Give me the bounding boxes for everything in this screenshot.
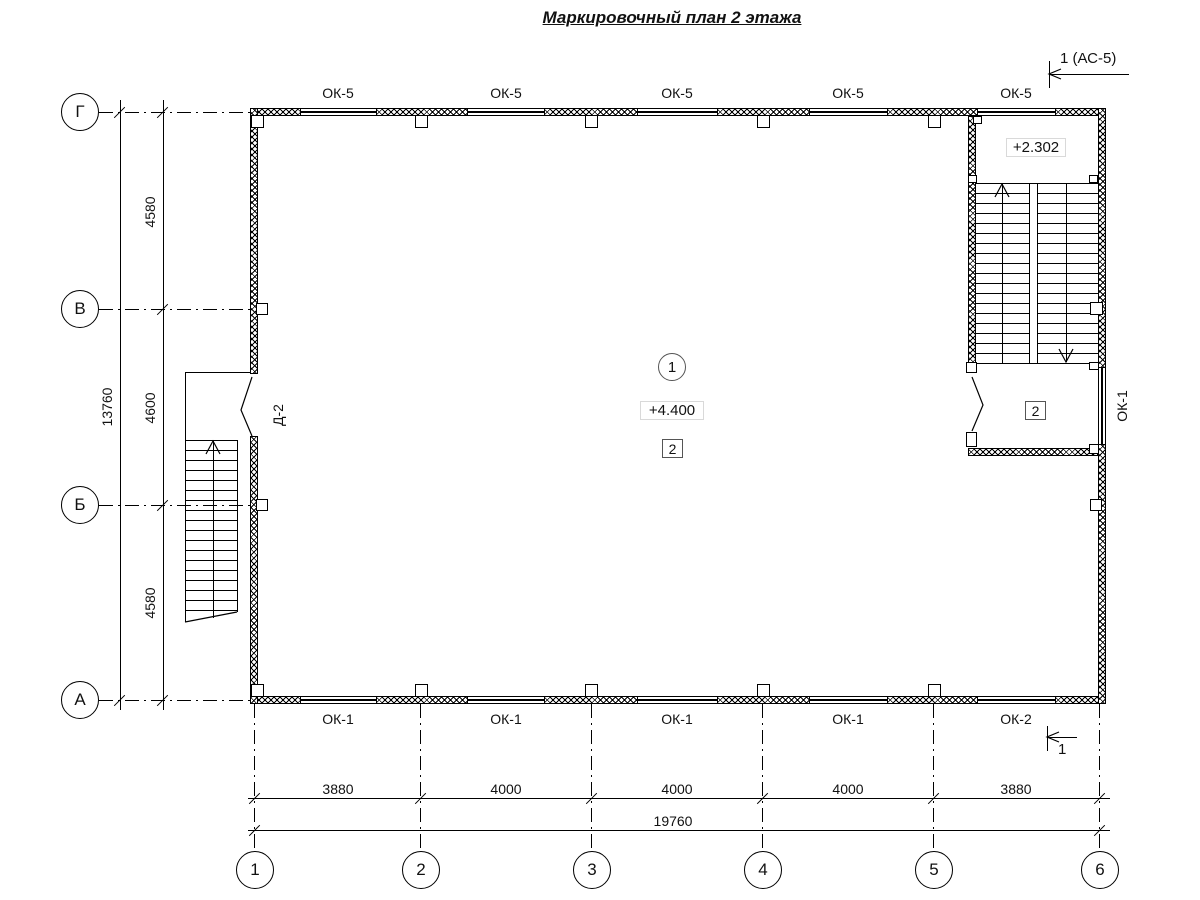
stair-tread [976, 213, 1029, 214]
stair-tread [976, 233, 1029, 234]
dim-bottom-total: 19760 [643, 813, 703, 829]
column-marker [585, 684, 598, 697]
stair-tread [976, 263, 1029, 264]
window-label-right: ОК-1 [1114, 376, 1130, 436]
column-marker [1090, 499, 1102, 511]
window-symbol [810, 696, 887, 704]
axis-bubble-row-a: А [61, 681, 99, 719]
axis-bubble-col-5: 5 [915, 851, 953, 889]
stair-tread [1037, 283, 1098, 284]
axis-bubble-col-2: 2 [402, 851, 440, 889]
axis-bubble-row-b: Б [61, 486, 99, 524]
axis-bubble-col-3: 3 [573, 851, 611, 889]
column-marker [1089, 444, 1099, 454]
stair-tread [185, 480, 237, 481]
column-marker [966, 362, 977, 373]
stair-tread [185, 520, 237, 521]
stair-tread [1037, 293, 1098, 294]
plan-line [237, 440, 238, 612]
stair-tread [185, 450, 237, 451]
plan-line [1047, 737, 1077, 738]
wall-segment [717, 696, 810, 704]
window-symbol [638, 108, 717, 116]
dim-bottom-5: 3880 [986, 781, 1046, 797]
stair-tread [976, 283, 1029, 284]
finish-type-box-stair: 2 [1025, 401, 1046, 420]
window-symbol [978, 696, 1055, 704]
plan-line [120, 100, 121, 710]
stair-tread [976, 253, 1029, 254]
window-symbol [468, 108, 544, 116]
stair-tread [185, 610, 237, 611]
window-label-bottom-3: ОК-1 [647, 711, 707, 727]
plan-line [1049, 61, 1050, 88]
stair-tread [185, 600, 237, 601]
axis-line [99, 700, 250, 701]
dim-left-1: 4580 [142, 182, 158, 242]
window-symbol [468, 696, 544, 704]
wall-segment [887, 696, 978, 704]
level-mark-stair-landing: +2.302 [1006, 138, 1066, 157]
wall-segment [250, 108, 258, 374]
column-marker [757, 115, 770, 128]
dim-left-3: 4580 [142, 573, 158, 633]
stair-tread [1037, 263, 1098, 264]
stair-tread [1037, 323, 1098, 324]
plan-line [185, 372, 250, 373]
column-marker [1089, 175, 1098, 183]
room-number-circle: 1 [658, 353, 686, 381]
wall-segment [1098, 108, 1106, 368]
stair-tread [1037, 243, 1098, 244]
door-swing-d2 [241, 377, 252, 436]
window-label-top-5: ОК-5 [986, 85, 1046, 101]
stair-tread [976, 273, 1029, 274]
axis-line [933, 704, 934, 851]
plan-line [185, 440, 237, 441]
door-label: Д-2 [270, 385, 286, 445]
stair-tread [185, 580, 237, 581]
plan-line [976, 183, 1098, 184]
stair-tread [185, 560, 237, 561]
dim-left-2: 4600 [142, 378, 158, 438]
window-label-bottom-5: ОК-2 [986, 711, 1046, 727]
window-label-top-4: ОК-5 [818, 85, 878, 101]
drawing-title: Маркировочный план 2 этажа [372, 8, 972, 28]
column-marker [966, 432, 977, 447]
column-marker [256, 303, 268, 315]
plan-line [248, 830, 1110, 831]
stair-tread [1037, 233, 1098, 234]
column-marker [1090, 302, 1103, 315]
stair-tread [976, 353, 1029, 354]
window-symbol [301, 108, 376, 116]
window-symbol [1098, 368, 1106, 444]
stair-tread [185, 550, 237, 551]
stair-tread [976, 333, 1029, 334]
axis-line [591, 704, 592, 851]
column-marker [585, 115, 598, 128]
stair-tread [185, 530, 237, 531]
column-marker [415, 684, 428, 697]
stair-tread [1037, 223, 1098, 224]
axis-line [99, 112, 250, 113]
window-label-top-3: ОК-5 [647, 85, 707, 101]
window-label-bottom-4: ОК-1 [818, 711, 878, 727]
stair-tread [976, 303, 1029, 304]
wall-segment [544, 696, 638, 704]
stair-tread [185, 590, 237, 591]
section-mark-top-label: 1 (АС-5) [1060, 50, 1116, 67]
stair-tread [1037, 353, 1098, 354]
stair-tread [185, 510, 237, 511]
stair-tread [1037, 273, 1098, 274]
axis-line [762, 704, 763, 851]
axis-line [99, 505, 250, 506]
window-symbol [301, 696, 376, 704]
plan-line [1047, 726, 1048, 751]
stair-tread [185, 500, 237, 501]
stair-tread [1037, 313, 1098, 314]
wall-segment [376, 696, 468, 704]
stair-tread [185, 460, 237, 461]
dim-bottom-4: 4000 [818, 781, 878, 797]
wall-segment [968, 448, 1098, 456]
stair-tread [1037, 253, 1098, 254]
window-label-bottom-2: ОК-1 [476, 711, 536, 727]
stair-tread [1037, 343, 1098, 344]
plan-line [185, 372, 186, 622]
axis-bubble-row-v: В [61, 290, 99, 328]
column-marker [928, 115, 941, 128]
level-mark-main: +4.400 [640, 401, 704, 420]
stair-tread [185, 470, 237, 471]
stair-tread [976, 293, 1029, 294]
stair-tread [1037, 333, 1098, 334]
stair-tread [976, 343, 1029, 344]
column-marker [973, 116, 982, 124]
plan-line [163, 100, 164, 710]
wall-segment [968, 116, 976, 364]
dim-left-total: 13760 [99, 377, 115, 437]
stair-bottom-slant [185, 612, 237, 622]
stair-tread [185, 540, 237, 541]
axis-bubble-col-1: 1 [236, 851, 274, 889]
stair-tread [1037, 213, 1098, 214]
stair-tread [976, 243, 1029, 244]
section-mark-bottom-label: 1 [1058, 741, 1066, 758]
stair-tread [1037, 193, 1098, 194]
column-marker [968, 175, 977, 183]
stair-tread [976, 313, 1029, 314]
wall-segment [250, 436, 258, 704]
axis-line [99, 309, 250, 310]
column-marker [256, 499, 268, 511]
stair-tread [976, 223, 1029, 224]
stair-tread [1037, 303, 1098, 304]
axis-line [420, 704, 421, 851]
stair-tread [976, 323, 1029, 324]
window-symbol [978, 108, 1055, 116]
window-label-top-1: ОК-5 [308, 85, 368, 101]
door-swing-stairwell [972, 377, 983, 431]
window-label-top-2: ОК-5 [476, 85, 536, 101]
plan-line [248, 798, 1110, 799]
stair-tread [185, 490, 237, 491]
stair-tread [185, 570, 237, 571]
dim-bottom-3: 4000 [647, 781, 707, 797]
axis-bubble-row-g: Г [61, 93, 99, 131]
column-marker [928, 684, 941, 697]
column-marker [757, 684, 770, 697]
column-marker [251, 684, 264, 697]
window-symbol [638, 696, 717, 704]
dim-bottom-1: 3880 [308, 781, 368, 797]
window-symbol [810, 108, 887, 116]
column-marker [251, 115, 264, 128]
plan-line [976, 363, 1098, 364]
window-label-bottom-1: ОК-1 [308, 711, 368, 727]
plan-line [1049, 74, 1129, 75]
floor-plan-canvas: Маркировочный план 2 этажа 1 (АС-5) 1 Г … [0, 0, 1200, 900]
axis-bubble-col-4: 4 [744, 851, 782, 889]
dim-bottom-2: 4000 [476, 781, 536, 797]
column-marker [1089, 362, 1099, 370]
column-marker [415, 115, 428, 128]
stair-tread [976, 203, 1029, 204]
finish-type-box-main: 2 [662, 439, 683, 458]
axis-bubble-col-6: 6 [1081, 851, 1119, 889]
wall-segment [1098, 444, 1106, 704]
stair-tread [976, 193, 1029, 194]
stair-tread [1037, 203, 1098, 204]
